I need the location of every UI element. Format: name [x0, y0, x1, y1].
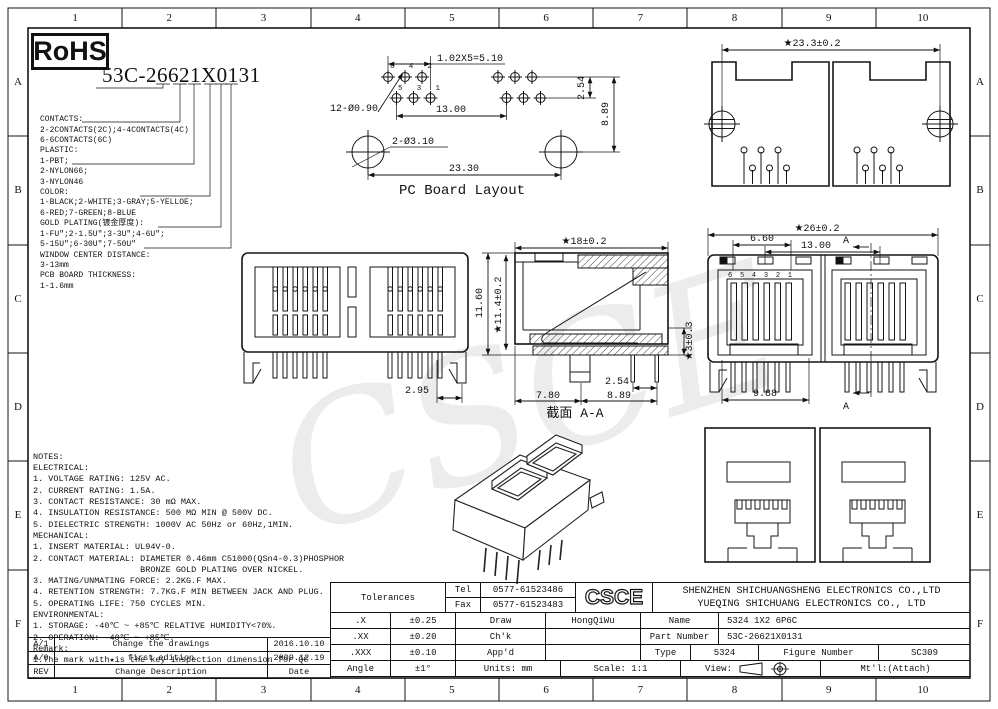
- dim-1160: 11.60: [475, 288, 486, 318]
- dim-pitch: 1.02X5=5.10: [437, 54, 503, 65]
- grid-col-label: 6: [499, 8, 593, 28]
- note-line: 5. OPERATING LIFE: 750 CYCLES MIN.: [33, 599, 344, 610]
- section-mark-a-top: A: [843, 236, 849, 247]
- name-label: Name: [641, 613, 719, 629]
- top-view: ★23.3±0.2: [704, 38, 958, 186]
- notes-block: NOTES:ELECTRICAL:1. VOLTAGE RATING: 125V…: [33, 418, 344, 667]
- dim-topview-width: ★23.3±0.2: [784, 38, 841, 50]
- revision-date: 2009.12.19: [268, 652, 330, 666]
- grid-col-label: 1: [28, 8, 122, 28]
- grid-col-label: 2: [122, 678, 216, 701]
- grid-row-label: D: [8, 353, 28, 461]
- revision-row: REV Change Description Date: [28, 665, 330, 679]
- revision-rev: A/1: [28, 638, 55, 652]
- grid-col-label: 10: [876, 8, 970, 28]
- grid-col-label: 5: [405, 8, 499, 28]
- port-contact-numbers: 654321: [728, 272, 792, 280]
- tol-xx-label: .XX: [331, 629, 391, 645]
- tol-xx-value: ±0.20: [391, 629, 456, 645]
- top-vents: [720, 257, 927, 264]
- projection-symbol-icon: [738, 662, 796, 676]
- grid-col-label: 4: [311, 678, 405, 701]
- pad-number: 4: [409, 63, 414, 71]
- ordering-line: PCB BOARD THICKNESS:: [40, 271, 194, 281]
- grid-row-label: D: [970, 353, 990, 461]
- pcb-pad-numbers-bottom: 531: [398, 85, 440, 93]
- pad-number: 5: [398, 85, 403, 93]
- grid-columns-bottom: 12345678910: [28, 678, 970, 701]
- view-label: View:: [705, 664, 732, 674]
- ordering-line: 2-NYLON66;: [40, 167, 194, 177]
- ordering-line: PLASTIC:: [40, 146, 194, 156]
- pcb-dimensions: 1.02X5=5.10 12-Ø0.90 13.00 2.54 8.89 2-Ø…: [330, 54, 620, 180]
- dim-295: 2.95: [405, 386, 429, 397]
- front-view-right: ★26±0.2 6.60 13.00 9.88 A A: [708, 223, 938, 413]
- dim-988: 9.88: [753, 389, 777, 400]
- part-number-value: 53C-26621X0131: [719, 629, 970, 645]
- revision-desc: Change the drawings: [55, 638, 268, 652]
- title-block: Tolerances Tel 0577-61523486 Fax 0577-61…: [330, 582, 970, 678]
- pad-number: 3: [417, 85, 422, 93]
- grid-row-label: C: [970, 245, 990, 353]
- name-value: 5324 1X2 6P6C: [719, 613, 970, 629]
- units-cell: Units: mm: [456, 661, 561, 677]
- type-label: Type: [641, 645, 691, 661]
- dim-13: 13.00: [436, 105, 466, 116]
- grid-row-label: A: [8, 28, 28, 136]
- note-line: ENVIRONMENTAL:: [33, 610, 344, 621]
- note-line: 5. DIELECTRIC STRENGTH: 1000V AC 50Hz or…: [33, 520, 344, 531]
- grid-row-label: F: [8, 570, 28, 678]
- tol-xxx-label: .XXX: [331, 645, 391, 661]
- ordering-line: 3-13mm: [40, 261, 194, 271]
- tel-label: Tel: [446, 583, 481, 598]
- dim-s254: 2.54: [605, 377, 629, 388]
- company-name-1: SHENZHEN SHICHUANGSHENG ELECTRONICS CO.,…: [682, 585, 940, 598]
- grid-col-label: 1: [28, 678, 122, 701]
- ordering-line: 1-1.6mm: [40, 282, 194, 292]
- contact-number: 1: [788, 272, 792, 280]
- revision-table: A/1 Change the drawings 2016.10.10 A/0 f…: [28, 637, 330, 678]
- grid-col-label: 3: [216, 8, 310, 28]
- grid-col-label: 7: [593, 678, 687, 701]
- revision-date: 2016.10.10: [268, 638, 330, 652]
- isometric-view: [453, 435, 604, 584]
- fax-value: 0577-61523483: [481, 598, 576, 613]
- revision-date: Date: [268, 665, 330, 679]
- front-view-left: 2.95: [242, 253, 468, 403]
- drawing-sheet: CSCE .ln{stroke:#151515;stroke-width:1;f…: [0, 0, 998, 709]
- revision-rev: A/0: [28, 652, 55, 666]
- note-line: 4. RETENTION STRENGTH: 7.7KG.F MIN BETWE…: [33, 587, 344, 598]
- chk-value: [546, 629, 641, 645]
- note-line: 1. VOLTAGE RATING: 125V AC.: [33, 474, 344, 485]
- grid-col-label: 8: [687, 8, 781, 28]
- pad-number: 2: [427, 63, 432, 71]
- contact-number: 5: [740, 272, 744, 280]
- grid-rows-left: ABCDEF: [8, 28, 28, 678]
- bottom-view: [705, 428, 930, 562]
- contact-number: 3: [764, 272, 768, 280]
- draw-label: Draw: [456, 613, 546, 629]
- dim-s889: 8.89: [607, 391, 631, 402]
- figure-number-value: SC309: [879, 645, 970, 661]
- part-number-label: Part Number: [641, 629, 719, 645]
- dim-26: ★26±0.2: [795, 223, 840, 235]
- contact-number: 4: [752, 272, 756, 280]
- ordering-line: 3-NYLON46: [40, 178, 194, 188]
- angle-label: Angle: [331, 661, 391, 677]
- company-logo: CSCE: [576, 583, 653, 613]
- screw-posts: [704, 106, 958, 142]
- pcb-pad-numbers-top: 642: [390, 63, 432, 71]
- grid-col-label: 2: [122, 8, 216, 28]
- material-cell: Mt'l:(Attach): [821, 661, 970, 677]
- grid-col-label: 5: [405, 678, 499, 701]
- ordering-line: 6-RED;7-GREEN;8-BLUE: [40, 209, 194, 219]
- revision-desc: Change Description: [55, 665, 268, 679]
- note-line: NOTES:: [33, 452, 344, 463]
- rohs-mark: RoHS: [31, 33, 109, 70]
- tol-x-label: .X: [331, 613, 391, 629]
- note-line: ELECTRICAL:: [33, 463, 344, 474]
- top-view-pins: [741, 147, 903, 184]
- contact-fingers: [273, 267, 443, 335]
- board-locks-and-pins: [244, 352, 466, 383]
- dim-660: 6.60: [750, 234, 774, 245]
- dim-18: ★18±0.2: [562, 236, 607, 248]
- fax-label: Fax: [446, 598, 481, 613]
- angle-value: ±1°: [391, 661, 456, 677]
- note-line: 1. INSERT MATERIAL: UL94V-0.: [33, 542, 344, 553]
- grid-col-label: 4: [311, 8, 405, 28]
- type-value: 5324: [691, 645, 759, 661]
- revision-row: A/1 Change the drawings 2016.10.10: [28, 638, 330, 652]
- ordering-line: COLOR:: [40, 188, 194, 198]
- pcb-layout-view: 1.02X5=5.10 12-Ø0.90 13.00 2.54 8.89 2-Ø…: [330, 54, 620, 199]
- ordering-line: GOLD PLATING(镀金厚度):: [40, 219, 194, 229]
- appd-label: App'd: [456, 645, 546, 661]
- ordering-line: 1-FU″;2-1.5U″;3-3U″;4-6U″;: [40, 230, 194, 240]
- section-caption: 截面 A-A: [546, 406, 603, 421]
- pad-number: 6: [390, 63, 395, 71]
- dim-889: 8.89: [601, 102, 612, 126]
- grid-row-label: A: [970, 28, 990, 136]
- dim-780: 7.80: [536, 391, 560, 402]
- figure-number-label: Figure Number: [759, 645, 879, 661]
- grid-row-label: F: [970, 570, 990, 678]
- note-line: 3. CONTACT RESISTANCE: 30 mΩ MAX.: [33, 497, 344, 508]
- appd-value: [546, 645, 641, 661]
- note-line: 2. CURRENT RATING: 1.5A.: [33, 486, 344, 497]
- scale-cell: Scale: 1:1: [561, 661, 681, 677]
- grid-row-label: E: [8, 461, 28, 569]
- dim-mount: 2-Ø3.10: [392, 136, 434, 148]
- ordering-line: 5-15U″;6-30U″;7-50U″: [40, 240, 194, 250]
- grid-col-label: 7: [593, 8, 687, 28]
- chk-label: Ch'k: [456, 629, 546, 645]
- grid-row-label: E: [970, 461, 990, 569]
- grid-col-label: 9: [782, 678, 876, 701]
- draw-value: HongQiWu: [546, 613, 641, 629]
- dim-3: ★3±0.3: [684, 322, 696, 361]
- section-mark-a-bottom: A: [843, 402, 849, 413]
- grid-col-label: 8: [687, 678, 781, 701]
- note-line: MECHANICAL:: [33, 531, 344, 542]
- grid-col-label: 6: [499, 678, 593, 701]
- grid-col-label: 10: [876, 678, 970, 701]
- grid-row-label: B: [8, 136, 28, 244]
- grid-columns-top: 12345678910: [28, 8, 970, 28]
- pcb-caption: PC Board Layout: [399, 183, 525, 199]
- ordering-line: 1-PBT;: [40, 157, 194, 167]
- revision-row: A/0 first edition 2009.12.19: [28, 652, 330, 666]
- note-line: 2. CONTACT MATERIAL: DIAMETER 0.46mm C51…: [33, 554, 344, 565]
- grid-col-label: 3: [216, 678, 310, 701]
- grid-rows-right: ABCDEF: [970, 28, 990, 678]
- pad-number: 1: [435, 85, 440, 93]
- note-line: BRONZE GOLD PLATING OVER NICKEL.: [33, 565, 344, 576]
- company-name-2: YUEQING SHICHUANG ELECTRONICS CO., LTD: [697, 598, 925, 611]
- ordering-line: WINDOW CENTER DISTANCE:: [40, 251, 194, 261]
- front-right-pins: [710, 362, 936, 392]
- dim-114: ★11.4±0.2: [493, 277, 505, 334]
- tel-value: 0577-61523486: [481, 583, 576, 598]
- ordering-line: CONTACTS:: [40, 115, 194, 125]
- grid-row-label: B: [970, 136, 990, 244]
- ordering-line: 6-6CONTACTS(6C): [40, 136, 194, 146]
- dim-holes: 12-Ø0.90: [330, 103, 378, 115]
- dim-2330: 23.30: [449, 164, 479, 175]
- company-names: SHENZHEN SHICHUANGSHENG ELECTRONICS CO.,…: [653, 583, 970, 613]
- view-cell: View:: [681, 661, 821, 677]
- note-line: 4. INSULATION RESISTANCE: 500 MΩ MIN @ 5…: [33, 508, 344, 519]
- dim-1300: 13.00: [801, 241, 831, 252]
- revision-rev: REV: [28, 665, 55, 679]
- note-line: 1. STORAGE: -40℃ ~ +85℃ RELATIVE HUMIDIT…: [33, 621, 344, 632]
- tol-x-value: ±0.25: [391, 613, 456, 629]
- dim-254: 2.54: [577, 76, 588, 100]
- contact-number: 2: [776, 272, 780, 280]
- grid-row-label: C: [8, 245, 28, 353]
- ordering-line: 1-BLACK;2-WHITE;3-GRAY;5-YELLOE;: [40, 198, 194, 208]
- tolerances-header: Tolerances: [331, 583, 446, 613]
- tol-xxx-value: ±0.10: [391, 645, 456, 661]
- revision-desc: first edition: [55, 652, 268, 666]
- contact-number: 6: [728, 272, 732, 280]
- note-line: 3. MATING/UNMATING FORCE: 2.2KG.F MAX.: [33, 576, 344, 587]
- ordering-line: 2-2CONTACTS(2C);4-4CONTACTS(4C): [40, 126, 194, 136]
- ordering-code-legend: CONTACTS:2-2CONTACTS(2C);4-4CONTACTS(4C)…: [40, 84, 194, 292]
- section-view: ★18±0.2 11.60 ★11.4±0.2 ★3±0.3 2.54 7.80…: [475, 236, 696, 421]
- grid-col-label: 9: [782, 8, 876, 28]
